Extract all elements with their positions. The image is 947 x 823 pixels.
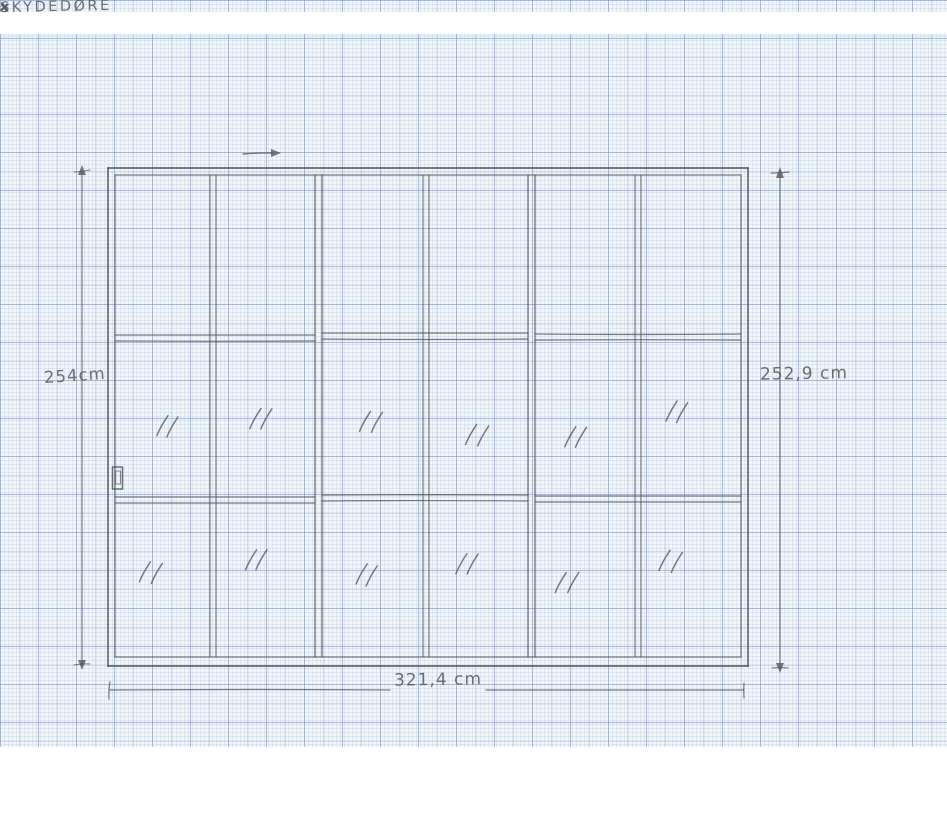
glass-mark: [250, 409, 261, 429]
panel-mullion: [216, 175, 217, 657]
arrowhead-up-icon: [78, 165, 86, 175]
glass-mark: [555, 573, 566, 593]
glass-mark: [356, 564, 367, 584]
glass-mark: [151, 563, 162, 583]
glass-mark: [456, 554, 467, 574]
glass-mark: [677, 403, 688, 423]
glass-mark: [671, 552, 682, 572]
bottom-width-dimension: 321,4 cm: [394, 671, 482, 689]
arrowhead-down-icon: [78, 660, 86, 670]
glass-mark: [565, 427, 576, 447]
glass-mark: [366, 566, 377, 586]
glass-mark: [666, 401, 677, 421]
glass-mark: [371, 412, 382, 432]
glass-mark: [157, 416, 168, 436]
sliding-doors-label: SKYDEDØRE: [0, 0, 112, 16]
glass-mark: [139, 562, 150, 582]
glass-mark: [246, 550, 257, 570]
glass-mark: [659, 550, 670, 570]
door-handle-inner: [116, 471, 121, 484]
glass-mark: [575, 427, 586, 447]
glass-mark: [360, 411, 371, 431]
glass-mark: [261, 409, 272, 429]
sliding-door-window-sketch: [0, 0, 947, 823]
arrowhead-right-icon: [271, 149, 281, 157]
direction-arrow-line: [243, 153, 272, 154]
glass-mark: [256, 550, 267, 570]
right-height-dimension: 252,9 cm: [760, 365, 848, 384]
glass-mark: [466, 425, 477, 445]
scanned-sketch-page: SKYDEDØRE x x 254cm 252,9 cm 321,4 cm: [0, 0, 947, 823]
glass-mark: [478, 426, 489, 446]
glass-mark: [467, 554, 478, 574]
glass-mark: [167, 417, 178, 437]
glass-mark: [568, 573, 579, 593]
